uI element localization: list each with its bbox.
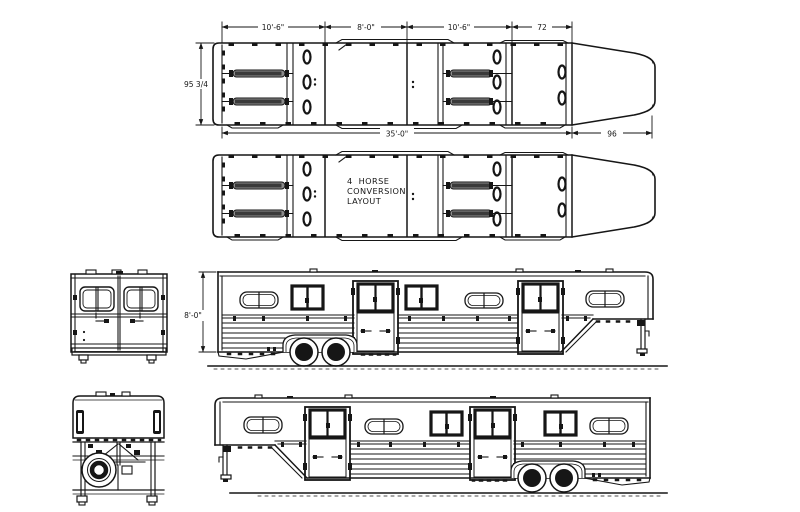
dim-label-floor-length: 35'-0" bbox=[386, 130, 409, 139]
plan-view-dimensioned: 10'-6" 8'-0" 10'-6" 72 95 3/4 35'-0" 96 bbox=[181, 22, 655, 139]
dim-label-body-height: 8'-0" bbox=[184, 311, 202, 320]
front-elevation bbox=[73, 392, 164, 505]
layout-note-line1: 4 HORSE bbox=[347, 176, 389, 186]
dim-label-dress-room: 8'-0" bbox=[357, 23, 375, 32]
dim-label-gooseneck-length: 96 bbox=[607, 130, 617, 139]
side-elevation-curbside: 8'-0" bbox=[179, 269, 667, 369]
rear-window-right bbox=[124, 287, 158, 311]
side-body-mirrored bbox=[215, 395, 650, 492]
trailer-blueprint-drawing: 10'-6" 8'-0" 10'-6" 72 95 3/4 35'-0" 96 … bbox=[0, 0, 800, 512]
rear-window-left bbox=[80, 287, 114, 311]
rear-elevation bbox=[71, 270, 167, 363]
dim-label-rear-bay: 10'-6" bbox=[262, 23, 285, 32]
layout-note-line2: CONVERSION bbox=[347, 186, 406, 196]
dim-label-front-bay: 10'-6" bbox=[448, 23, 471, 32]
side-elevation-roadside bbox=[215, 395, 667, 496]
side-body bbox=[218, 269, 653, 366]
spare-tire bbox=[82, 453, 116, 487]
layout-note-line3: LAYOUT bbox=[347, 196, 382, 206]
dim-label-front-section: 72 bbox=[537, 23, 547, 32]
plan-body bbox=[213, 40, 655, 129]
dim-label-body-width: 95 3/4 bbox=[184, 80, 208, 89]
plan-view-4horse-layout: 4 HORSE CONVERSION LAYOUT bbox=[213, 152, 655, 241]
blueprint-page: 10'-6" 8'-0" 10'-6" 72 95 3/4 35'-0" 96 … bbox=[0, 0, 800, 512]
plan-body bbox=[213, 152, 655, 241]
